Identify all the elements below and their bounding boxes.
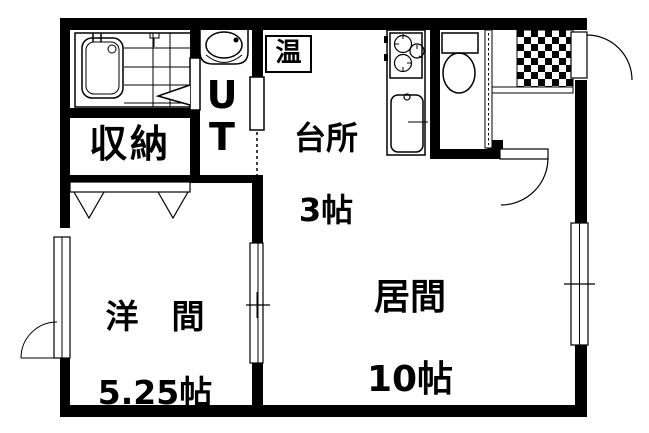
toilet-partition	[485, 30, 492, 148]
genkan-step	[492, 87, 573, 93]
living-room-door	[500, 149, 548, 205]
front-door	[571, 32, 632, 80]
western-name: 洋 間	[78, 298, 232, 336]
western-left-window	[21, 237, 70, 358]
western-size: 5.25帖	[78, 374, 232, 412]
living-right-window	[564, 223, 595, 345]
room-divider-sliding-door	[246, 243, 270, 363]
shower-icon	[150, 33, 159, 47]
living-size: 10帖	[350, 359, 470, 400]
storage-room-label: 収納	[66, 124, 194, 165]
kitchen-counter	[384, 30, 428, 155]
washbasin-icon	[200, 30, 248, 64]
entrance	[492, 30, 632, 205]
floorplan: 収納 UT 温 台所 3帖 居間 10帖 洋 間 5.25帖	[0, 0, 649, 433]
closet-folding-doors	[70, 182, 190, 218]
water-heater-label: 温	[265, 35, 312, 73]
utility-room-label: UT	[205, 74, 239, 158]
bath-door	[158, 58, 200, 110]
bathroom-fixture	[75, 33, 200, 110]
toilet-room	[442, 30, 492, 148]
living-room-label: 居間 10帖	[350, 236, 470, 433]
genkan-checker-floor	[517, 30, 573, 87]
kitchen-name: 台所	[270, 120, 382, 156]
ut-sliding-door	[250, 77, 264, 175]
kitchen-size: 3帖	[270, 192, 382, 228]
toilet-icon	[442, 33, 478, 93]
living-name: 居間	[350, 277, 470, 318]
bathtub-icon	[82, 33, 123, 98]
western-room-label: 洋 間 5.25帖	[78, 260, 232, 433]
